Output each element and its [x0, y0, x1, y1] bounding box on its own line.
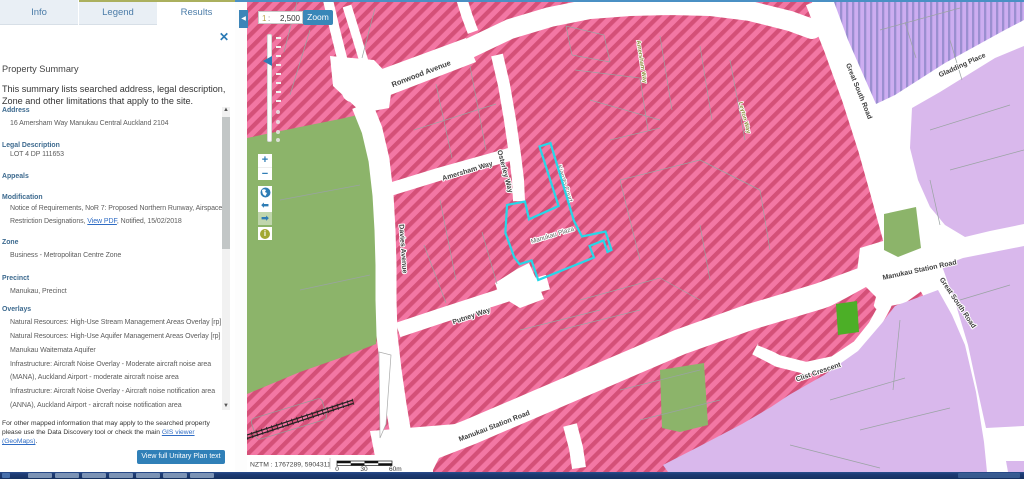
svg-text:NZTM : 1767289, 5904311: NZTM : 1767289, 5904311: [250, 462, 331, 469]
